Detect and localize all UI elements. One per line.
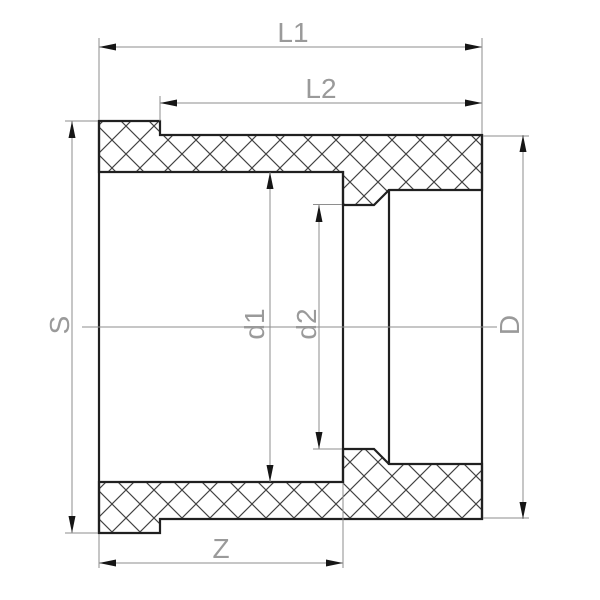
arrow-z-right: [326, 560, 343, 567]
label-l2: L2: [305, 73, 336, 104]
lower-wall-hatch: [99, 449, 482, 533]
arrow-s-top: [69, 121, 76, 138]
arrow-l2-left: [160, 100, 177, 107]
arrow-d2-bottom: [316, 432, 323, 449]
arrow-d2-top: [316, 205, 323, 222]
label-z: Z: [212, 533, 229, 564]
drawing-canvas: L1 L2 S d1 d2 D Z: [0, 0, 600, 600]
label-d1: d1: [239, 308, 270, 339]
label-l1: L1: [277, 17, 308, 48]
label-d2: d2: [291, 308, 322, 339]
arrow-l1-right: [465, 44, 482, 51]
fitting-section-drawing: L1 L2 S d1 d2 D Z: [0, 0, 600, 600]
arrow-d-outer-top: [520, 135, 527, 152]
label-s: S: [44, 316, 75, 335]
arrow-d-outer-bottom: [520, 502, 527, 519]
arrow-d1-bottom: [267, 465, 274, 482]
arrow-z-left: [99, 560, 116, 567]
arrow-l2-right: [465, 100, 482, 107]
arrow-d1-top: [267, 172, 274, 189]
arrow-s-bottom: [69, 516, 76, 533]
upper-wall-hatch: [99, 121, 482, 205]
label-d-outer: D: [494, 315, 525, 335]
arrow-l1-left: [99, 44, 116, 51]
